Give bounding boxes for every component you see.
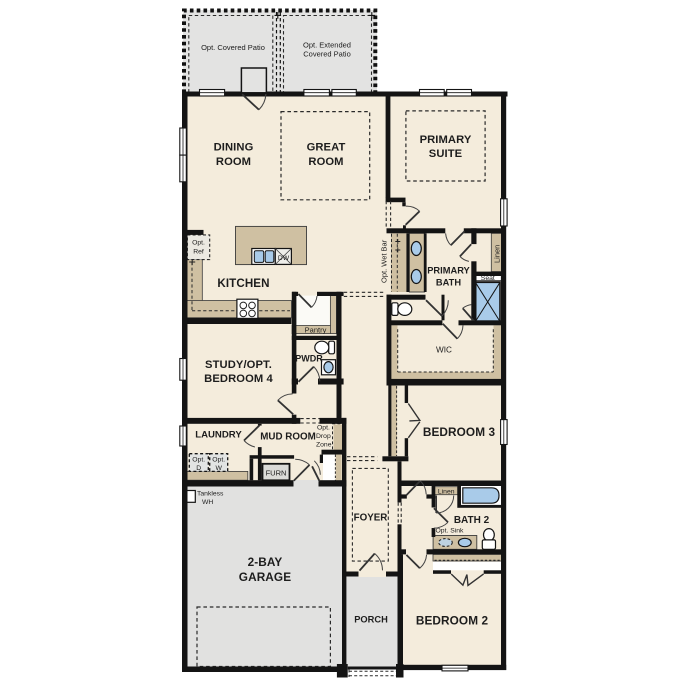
svg-text:Opt. Extended: Opt. Extended: [303, 41, 351, 50]
svg-text:MUD ROOM: MUD ROOM: [260, 431, 316, 442]
svg-text:Opt. Covered Patio: Opt. Covered Patio: [201, 43, 265, 52]
svg-text:PRIMARY: PRIMARY: [427, 266, 470, 276]
svg-text:Seat: Seat: [481, 275, 495, 282]
svg-text:Tankless: Tankless: [197, 491, 224, 498]
svg-text:PWDR: PWDR: [295, 354, 323, 364]
svg-text:BATH: BATH: [436, 278, 461, 288]
svg-text:BATH 2: BATH 2: [454, 515, 490, 526]
svg-text:STUDY/OPT.: STUDY/OPT.: [205, 359, 272, 371]
svg-text:GREAT: GREAT: [307, 142, 346, 154]
svg-text:GARAGE: GARAGE: [239, 570, 291, 584]
svg-text:WIC: WIC: [436, 346, 452, 355]
svg-text:ROOM: ROOM: [308, 156, 343, 168]
svg-text:BEDROOM 2: BEDROOM 2: [416, 614, 489, 628]
svg-text:LAUNDRY: LAUNDRY: [195, 429, 242, 440]
svg-text:DW: DW: [278, 255, 290, 262]
svg-text:BEDROOM 4: BEDROOM 4: [204, 373, 273, 385]
svg-text:D: D: [196, 465, 201, 472]
svg-text:Pantry: Pantry: [305, 325, 327, 334]
svg-text:ROOM: ROOM: [216, 156, 251, 168]
svg-text:PORCH: PORCH: [354, 614, 388, 624]
svg-text:DINING: DINING: [214, 142, 254, 154]
svg-text:Linen: Linen: [492, 245, 501, 263]
svg-text:Opt. Wet Bar: Opt. Wet Bar: [380, 239, 389, 283]
svg-text:2-BAY: 2-BAY: [248, 555, 283, 569]
svg-text:Zone: Zone: [316, 442, 332, 449]
svg-text:FURN: FURN: [266, 469, 287, 478]
svg-text:Opt.: Opt.: [192, 240, 205, 247]
svg-text:Ref: Ref: [193, 249, 204, 256]
svg-text:Opt. Sink: Opt. Sink: [436, 528, 465, 535]
svg-text:Opt.: Opt.: [317, 425, 330, 432]
svg-text:Covered Patio: Covered Patio: [303, 50, 351, 59]
svg-text:Linen: Linen: [438, 488, 455, 495]
svg-text:BEDROOM 3: BEDROOM 3: [423, 425, 496, 439]
svg-text:SUITE: SUITE: [429, 148, 463, 160]
svg-text:Opt.: Opt.: [192, 457, 205, 464]
svg-text:WH: WH: [202, 499, 213, 506]
svg-text:Opt.: Opt.: [212, 457, 225, 464]
svg-text:KITCHEN: KITCHEN: [217, 277, 269, 290]
svg-text:W: W: [215, 465, 222, 472]
svg-text:Drop: Drop: [316, 433, 331, 440]
svg-text:PRIMARY: PRIMARY: [420, 134, 472, 146]
svg-text:FOYER: FOYER: [354, 512, 388, 523]
